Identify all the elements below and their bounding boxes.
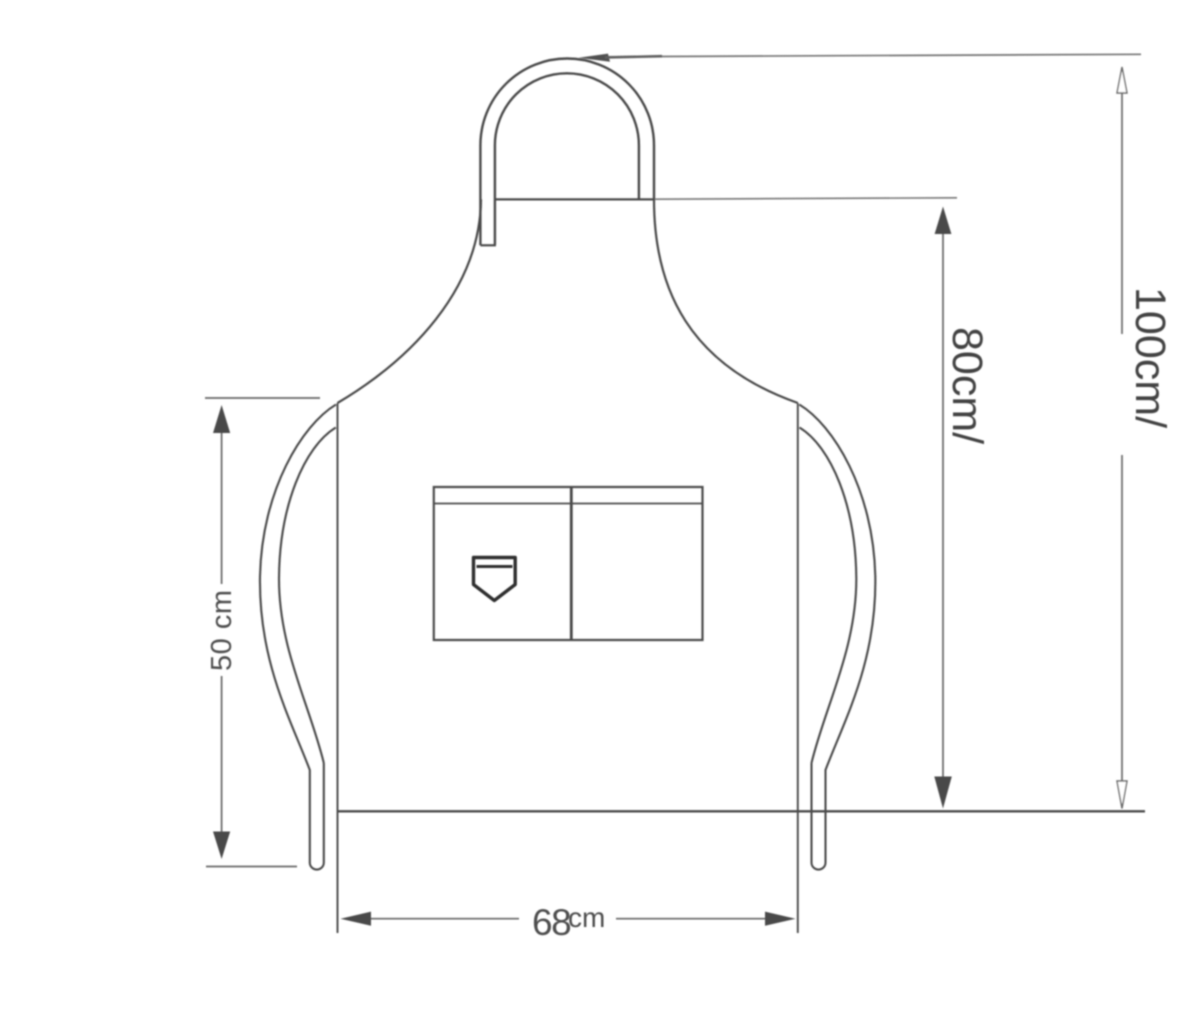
svg-text:100cm/: 100cm/ bbox=[1126, 287, 1174, 428]
svg-text:cm: cm bbox=[568, 902, 605, 933]
svg-text:50 cm: 50 cm bbox=[206, 590, 238, 671]
svg-text:80cm/: 80cm/ bbox=[943, 327, 991, 444]
svg-text:68: 68 bbox=[532, 902, 570, 943]
